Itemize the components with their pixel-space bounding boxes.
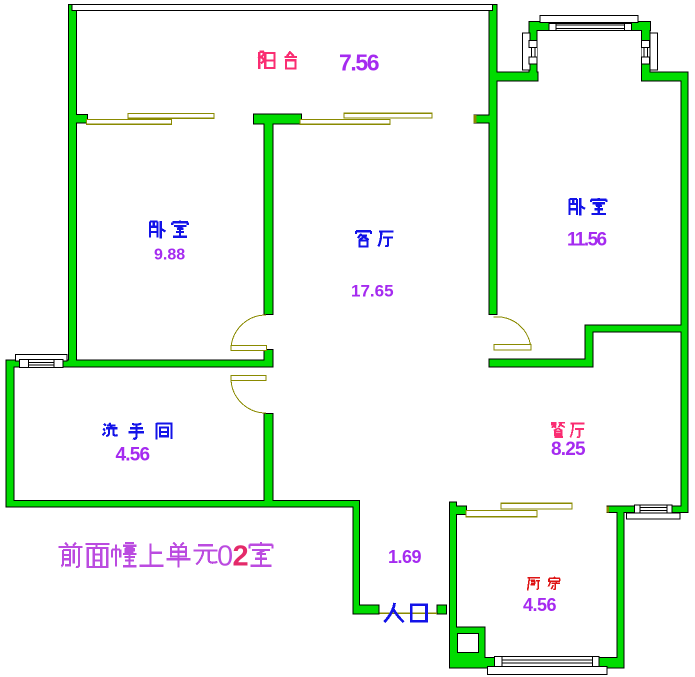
svg-text:17.65: 17.65 [351,281,394,300]
svg-text:8.25: 8.25 [551,439,586,460]
svg-text:4.56: 4.56 [523,595,557,615]
svg-text:2: 2 [233,541,249,573]
svg-text:1.69: 1.69 [388,547,422,567]
svg-text:7.56: 7.56 [339,50,379,76]
svg-text:9.88: 9.88 [154,247,185,264]
svg-text:4.56: 4.56 [116,445,150,466]
svg-text:11.56: 11.56 [567,230,607,251]
svg-text:0: 0 [217,541,233,573]
